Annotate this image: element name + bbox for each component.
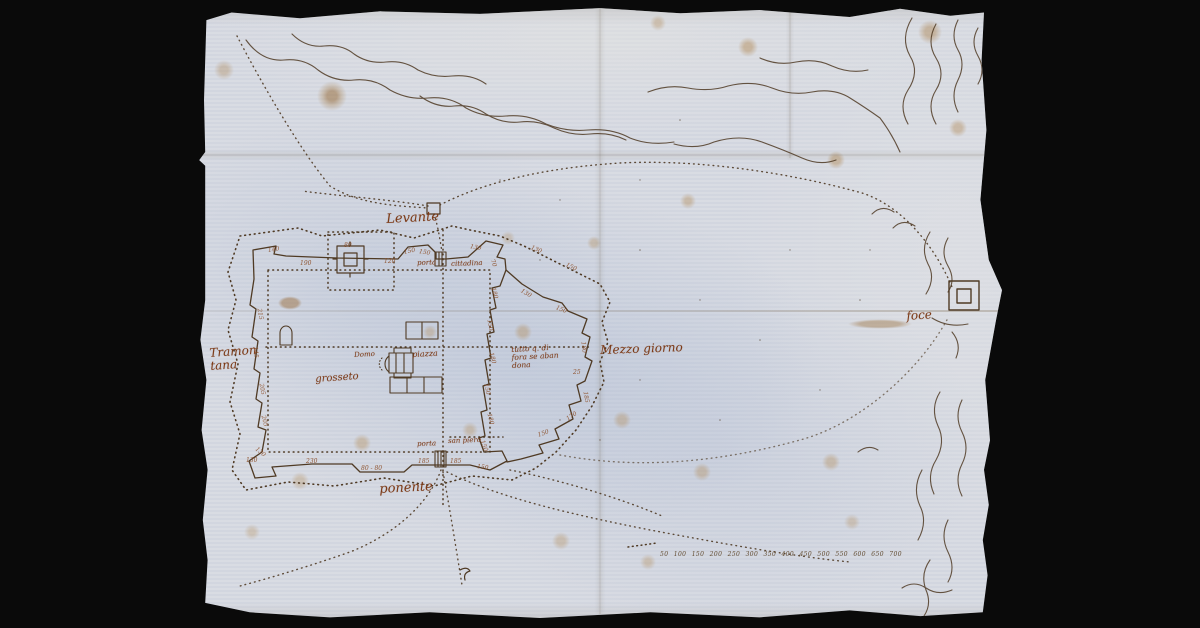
cathedral xyxy=(379,348,413,378)
chapel xyxy=(280,326,292,345)
building-blocks xyxy=(390,322,442,393)
river-lines xyxy=(246,34,900,163)
keep xyxy=(333,242,368,277)
scale-dots xyxy=(628,543,657,547)
foce-tower xyxy=(949,281,979,310)
city-walls xyxy=(249,241,592,478)
abandoned-annex-wall xyxy=(506,270,592,462)
ink-specks xyxy=(499,119,871,441)
roads-dotted xyxy=(237,36,952,586)
ink-drawing xyxy=(0,0,1200,628)
coast-waves xyxy=(858,18,982,616)
manuscript-map-scan: LevanteTramon tanaMezzo giornoponentefoc… xyxy=(0,0,1200,628)
road-junction-square xyxy=(427,203,440,214)
paper-sheet: LevanteTramon tanaMezzo giornoponentefoc… xyxy=(0,0,1200,628)
outer-enceinte-dotted xyxy=(228,226,610,490)
